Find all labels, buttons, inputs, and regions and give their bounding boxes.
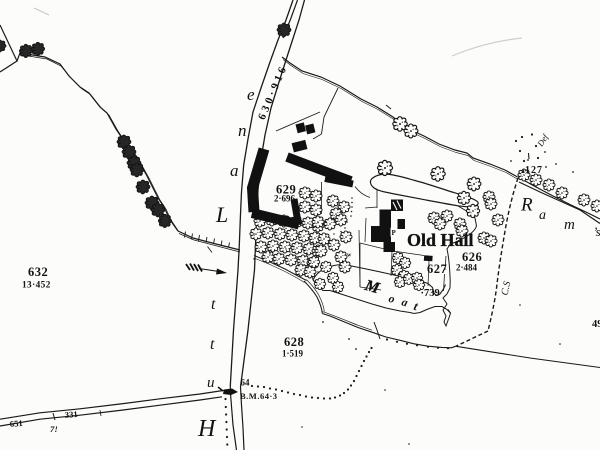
svg-text:P: P — [392, 229, 397, 237]
svg-text:630·916: 630·916 — [256, 63, 290, 122]
svg-text:B.M.64·3: B.M.64·3 — [240, 391, 278, 401]
svg-text:n: n — [238, 121, 247, 140]
svg-text:R: R — [520, 195, 533, 216]
svg-text:2·696: 2·696 — [274, 194, 296, 204]
svg-text:632: 632 — [28, 265, 48, 279]
svg-text:2·484: 2·484 — [456, 263, 478, 273]
svg-text:m: m — [564, 217, 575, 233]
svg-text:13·452: 13·452 — [22, 281, 51, 291]
svg-text:u: u — [207, 375, 215, 391]
svg-text:628: 628 — [284, 335, 304, 349]
svg-text:1·519: 1·519 — [282, 349, 304, 359]
svg-text:t: t — [412, 299, 420, 314]
svg-text:e: e — [247, 85, 255, 104]
svg-text:Old Hall: Old Hall — [407, 230, 474, 250]
svg-text:627: 627 — [427, 262, 447, 276]
svg-text:L: L — [215, 202, 228, 227]
svg-text:a: a — [400, 296, 409, 309]
svg-text:331: 331 — [64, 409, 78, 420]
svg-text:o: o — [387, 293, 396, 306]
svg-text:64: 64 — [241, 378, 251, 388]
svg-text:a: a — [539, 208, 546, 223]
svg-text:651: 651 — [9, 418, 23, 429]
svg-text:7!: 7! — [50, 424, 58, 434]
svg-text:a: a — [230, 161, 239, 180]
svg-text:w: w — [347, 253, 352, 259]
svg-text:H: H — [197, 416, 217, 442]
svg-text:’s: ’s — [593, 224, 600, 239]
svg-text:127: 127 — [525, 165, 543, 176]
svg-text:t: t — [210, 336, 215, 353]
svg-text:49: 49 — [592, 319, 600, 330]
svg-text:M: M — [362, 277, 382, 298]
svg-text:t: t — [211, 296, 216, 313]
svg-text:C.S: C.S — [499, 280, 513, 296]
svg-text:·739: ·739 — [421, 288, 440, 299]
